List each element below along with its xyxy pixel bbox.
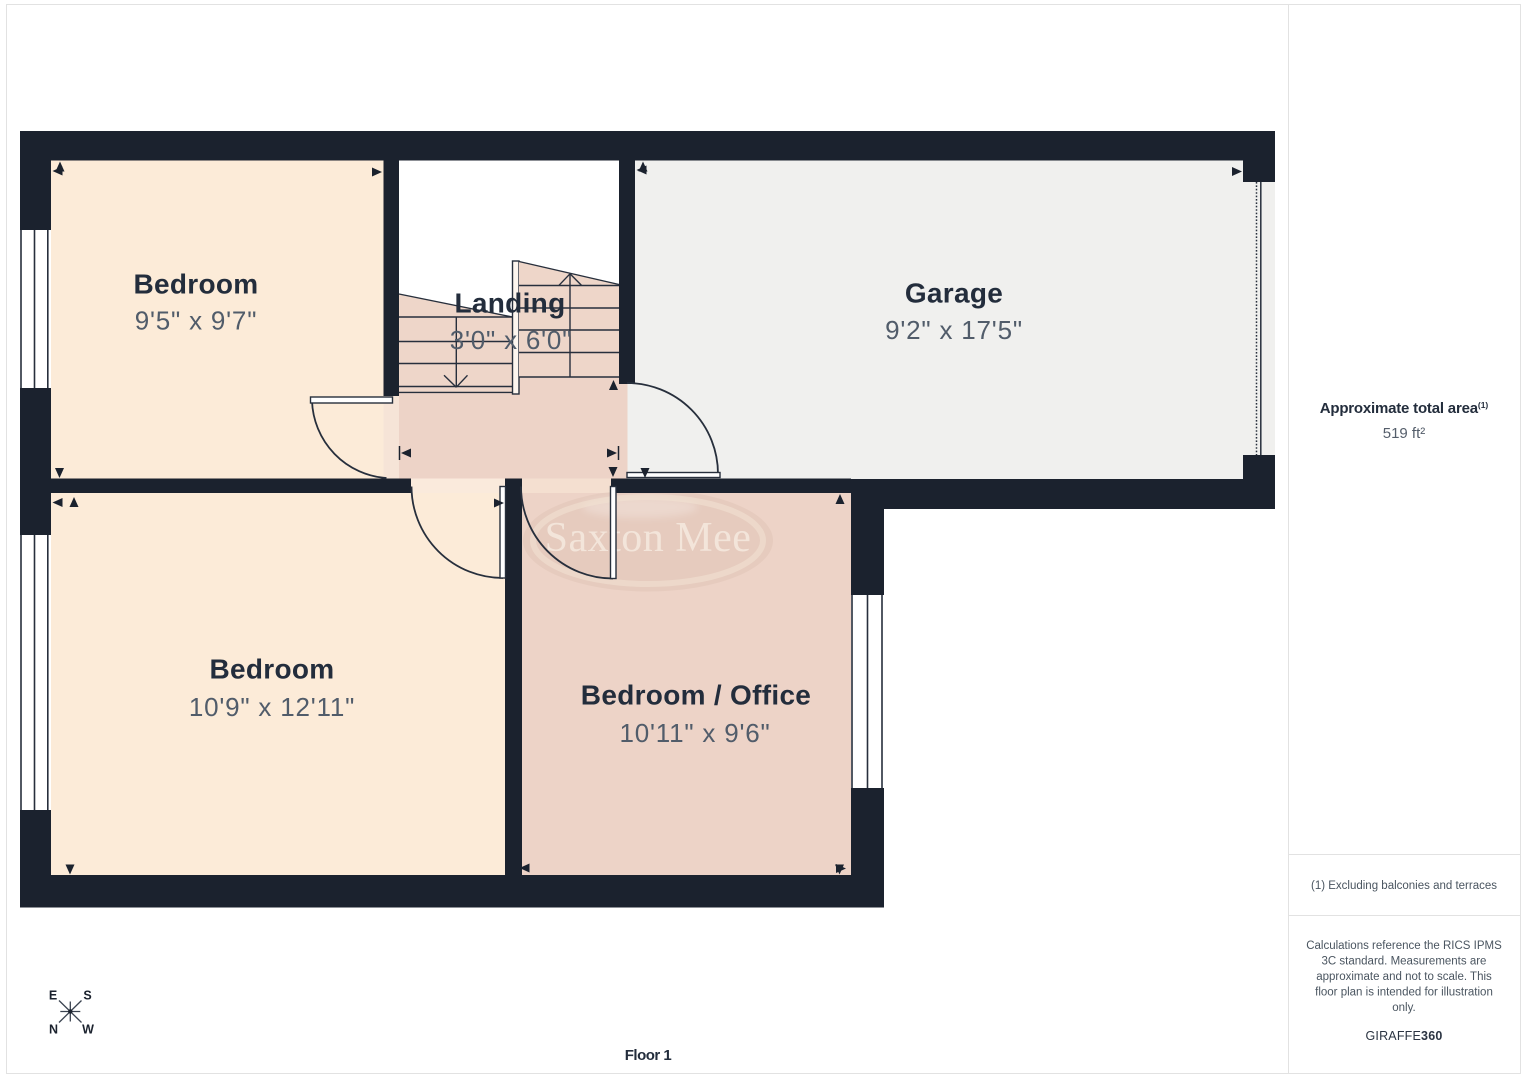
svg-text:N: N bbox=[49, 1023, 58, 1037]
svg-text:S: S bbox=[83, 989, 91, 1003]
svg-text:3'0" x 6'0": 3'0" x 6'0" bbox=[450, 325, 572, 355]
svg-text:W: W bbox=[82, 1023, 94, 1037]
svg-text:only.: only. bbox=[1392, 1002, 1415, 1014]
svg-text:Approximate total area(1): Approximate total area(1) bbox=[1320, 400, 1489, 417]
svg-text:floor plan is intended for ill: floor plan is intended for illustration bbox=[1315, 987, 1493, 999]
svg-text:519 ft²: 519 ft² bbox=[1383, 425, 1426, 442]
svg-text:Garage: Garage bbox=[905, 278, 1003, 309]
svg-text:Floor 1: Floor 1 bbox=[625, 1047, 672, 1064]
svg-text:(1) Excluding balconies and te: (1) Excluding balconies and terraces bbox=[1311, 880, 1497, 892]
svg-text:10'9" x 12'11": 10'9" x 12'11" bbox=[189, 692, 355, 722]
svg-text:GIRAFFE360: GIRAFFE360 bbox=[1365, 1029, 1442, 1043]
svg-text:Bedroom / Office: Bedroom / Office bbox=[581, 680, 811, 711]
svg-text:9'5" x 9'7": 9'5" x 9'7" bbox=[135, 306, 257, 336]
svg-text:Saxton Mee: Saxton Mee bbox=[545, 515, 752, 561]
svg-text:10'11" x 9'6": 10'11" x 9'6" bbox=[619, 718, 770, 748]
svg-text:Calculations reference the RIC: Calculations reference the RICS IPMS bbox=[1306, 940, 1502, 952]
svg-text:approximate and not to scale.: approximate and not to scale. This bbox=[1316, 971, 1492, 983]
svg-text:9'2" x 17'5": 9'2" x 17'5" bbox=[885, 315, 1023, 345]
svg-text:Bedroom: Bedroom bbox=[134, 269, 259, 300]
svg-text:E: E bbox=[49, 989, 57, 1003]
svg-text:3C standard. Measurements are: 3C standard. Measurements are bbox=[1322, 956, 1487, 968]
svg-text:Landing: Landing bbox=[455, 288, 566, 319]
svg-text:Bedroom: Bedroom bbox=[210, 654, 335, 685]
